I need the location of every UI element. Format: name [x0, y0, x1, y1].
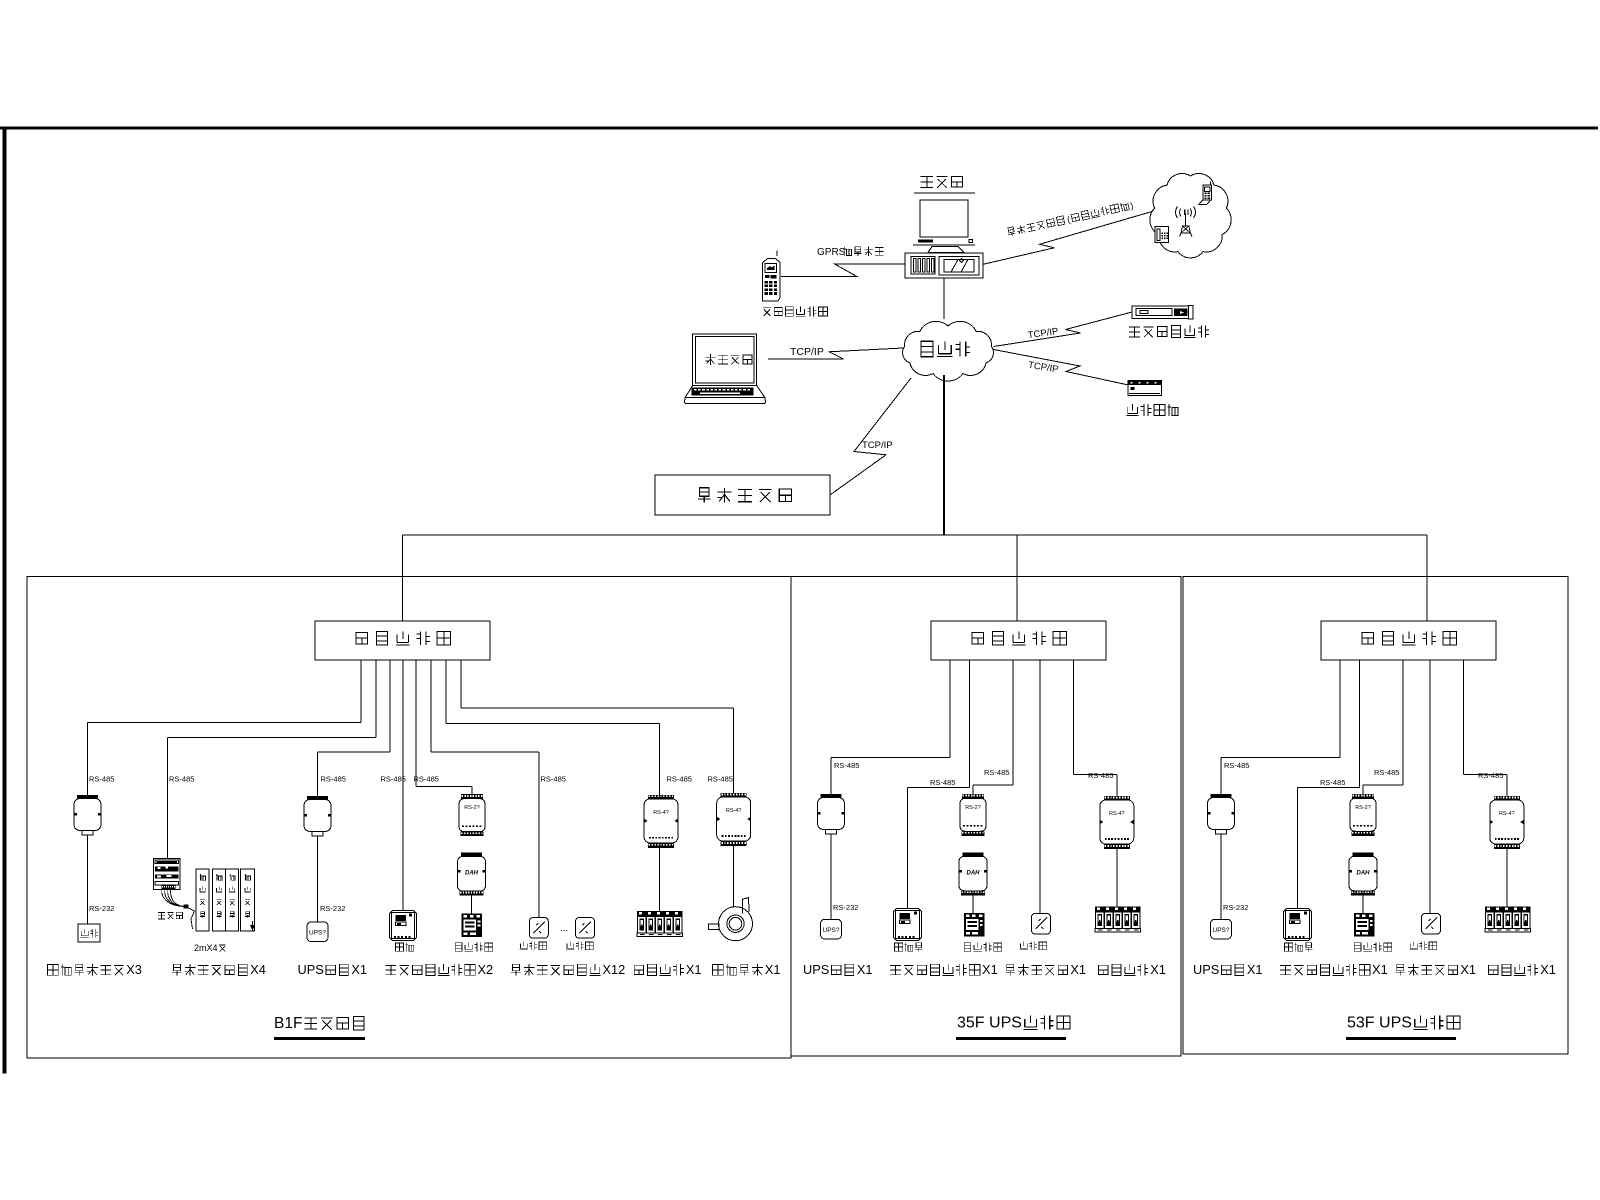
svg-text:53F UPS: 53F UPS	[1347, 1015, 1412, 1032]
svg-text:X1: X1	[686, 962, 702, 977]
svg-text:UPS: UPS	[803, 962, 829, 977]
svg-text:GPRS: GPRS	[817, 247, 846, 258]
svg-text:DAH: DAH	[1357, 870, 1371, 876]
svg-text:RS-485: RS-485	[169, 775, 194, 784]
svg-text:RS-485: RS-485	[1478, 771, 1503, 780]
svg-text:DAH: DAH	[967, 870, 981, 876]
svg-text:RS-485: RS-485	[1320, 778, 1345, 787]
svg-text:RS-485: RS-485	[708, 775, 733, 784]
svg-text:X1: X1	[982, 962, 998, 977]
svg-text:X1: X1	[351, 962, 367, 977]
svg-text:RS-4?: RS-4?	[1109, 811, 1125, 817]
svg-text:RS-485: RS-485	[834, 761, 859, 770]
svg-text:X2: X2	[477, 962, 493, 977]
svg-text:RS-2?: RS-2?	[464, 805, 480, 811]
svg-text:RS-485: RS-485	[984, 768, 1009, 777]
svg-text:2mX4: 2mX4	[194, 943, 218, 953]
svg-text:RS-485: RS-485	[381, 775, 406, 784]
svg-text:X1: X1	[765, 962, 781, 977]
svg-text:...: ...	[560, 923, 568, 934]
svg-text:RS-2?: RS-2?	[965, 805, 981, 811]
svg-text:B1F: B1F	[274, 1015, 302, 1032]
svg-text:RS-2?: RS-2?	[1355, 805, 1371, 811]
svg-text:RS-232: RS-232	[833, 903, 858, 912]
svg-text:RS-232: RS-232	[89, 904, 114, 913]
svg-text:X1: X1	[1540, 962, 1556, 977]
svg-text:TCP/IP: TCP/IP	[790, 346, 824, 358]
svg-text:X1: X1	[1150, 962, 1166, 977]
svg-text:RS-485: RS-485	[89, 775, 114, 784]
svg-text:RS-485: RS-485	[1374, 768, 1399, 777]
svg-text:RS-4?: RS-4?	[1499, 811, 1515, 817]
svg-text:DAH: DAH	[465, 871, 479, 877]
svg-text:UPS: UPS	[1193, 962, 1219, 977]
svg-text:RS-485: RS-485	[414, 775, 439, 784]
svg-text:RS-4?: RS-4?	[726, 808, 742, 814]
svg-text:X12: X12	[602, 962, 625, 977]
svg-text:X3: X3	[126, 962, 142, 977]
svg-text:RS-485: RS-485	[930, 778, 955, 787]
svg-text:UPS?: UPS?	[823, 927, 840, 934]
svg-text:RS-485: RS-485	[541, 775, 566, 784]
svg-text:RS-485: RS-485	[667, 775, 692, 784]
svg-text:RS-4?: RS-4?	[653, 810, 669, 816]
svg-text:X1: X1	[1070, 962, 1086, 977]
svg-text:X4: X4	[250, 962, 266, 977]
svg-text:UPS?: UPS?	[1213, 927, 1230, 934]
svg-text:UPS: UPS	[298, 962, 324, 977]
svg-text:RS-232: RS-232	[1223, 903, 1248, 912]
svg-text:RS-232: RS-232	[320, 904, 345, 913]
svg-text:RS-485: RS-485	[1088, 771, 1113, 780]
svg-text:X1: X1	[1247, 962, 1263, 977]
svg-text:35F UPS: 35F UPS	[957, 1015, 1022, 1032]
svg-text:RS-485: RS-485	[321, 775, 346, 784]
svg-text:X1: X1	[1460, 962, 1476, 977]
svg-text:TCP/IP: TCP/IP	[862, 440, 893, 451]
svg-text:X1: X1	[1372, 962, 1388, 977]
svg-text:X1: X1	[857, 962, 873, 977]
svg-text:UPS?: UPS?	[309, 930, 326, 937]
svg-text:RS-485: RS-485	[1224, 761, 1249, 770]
